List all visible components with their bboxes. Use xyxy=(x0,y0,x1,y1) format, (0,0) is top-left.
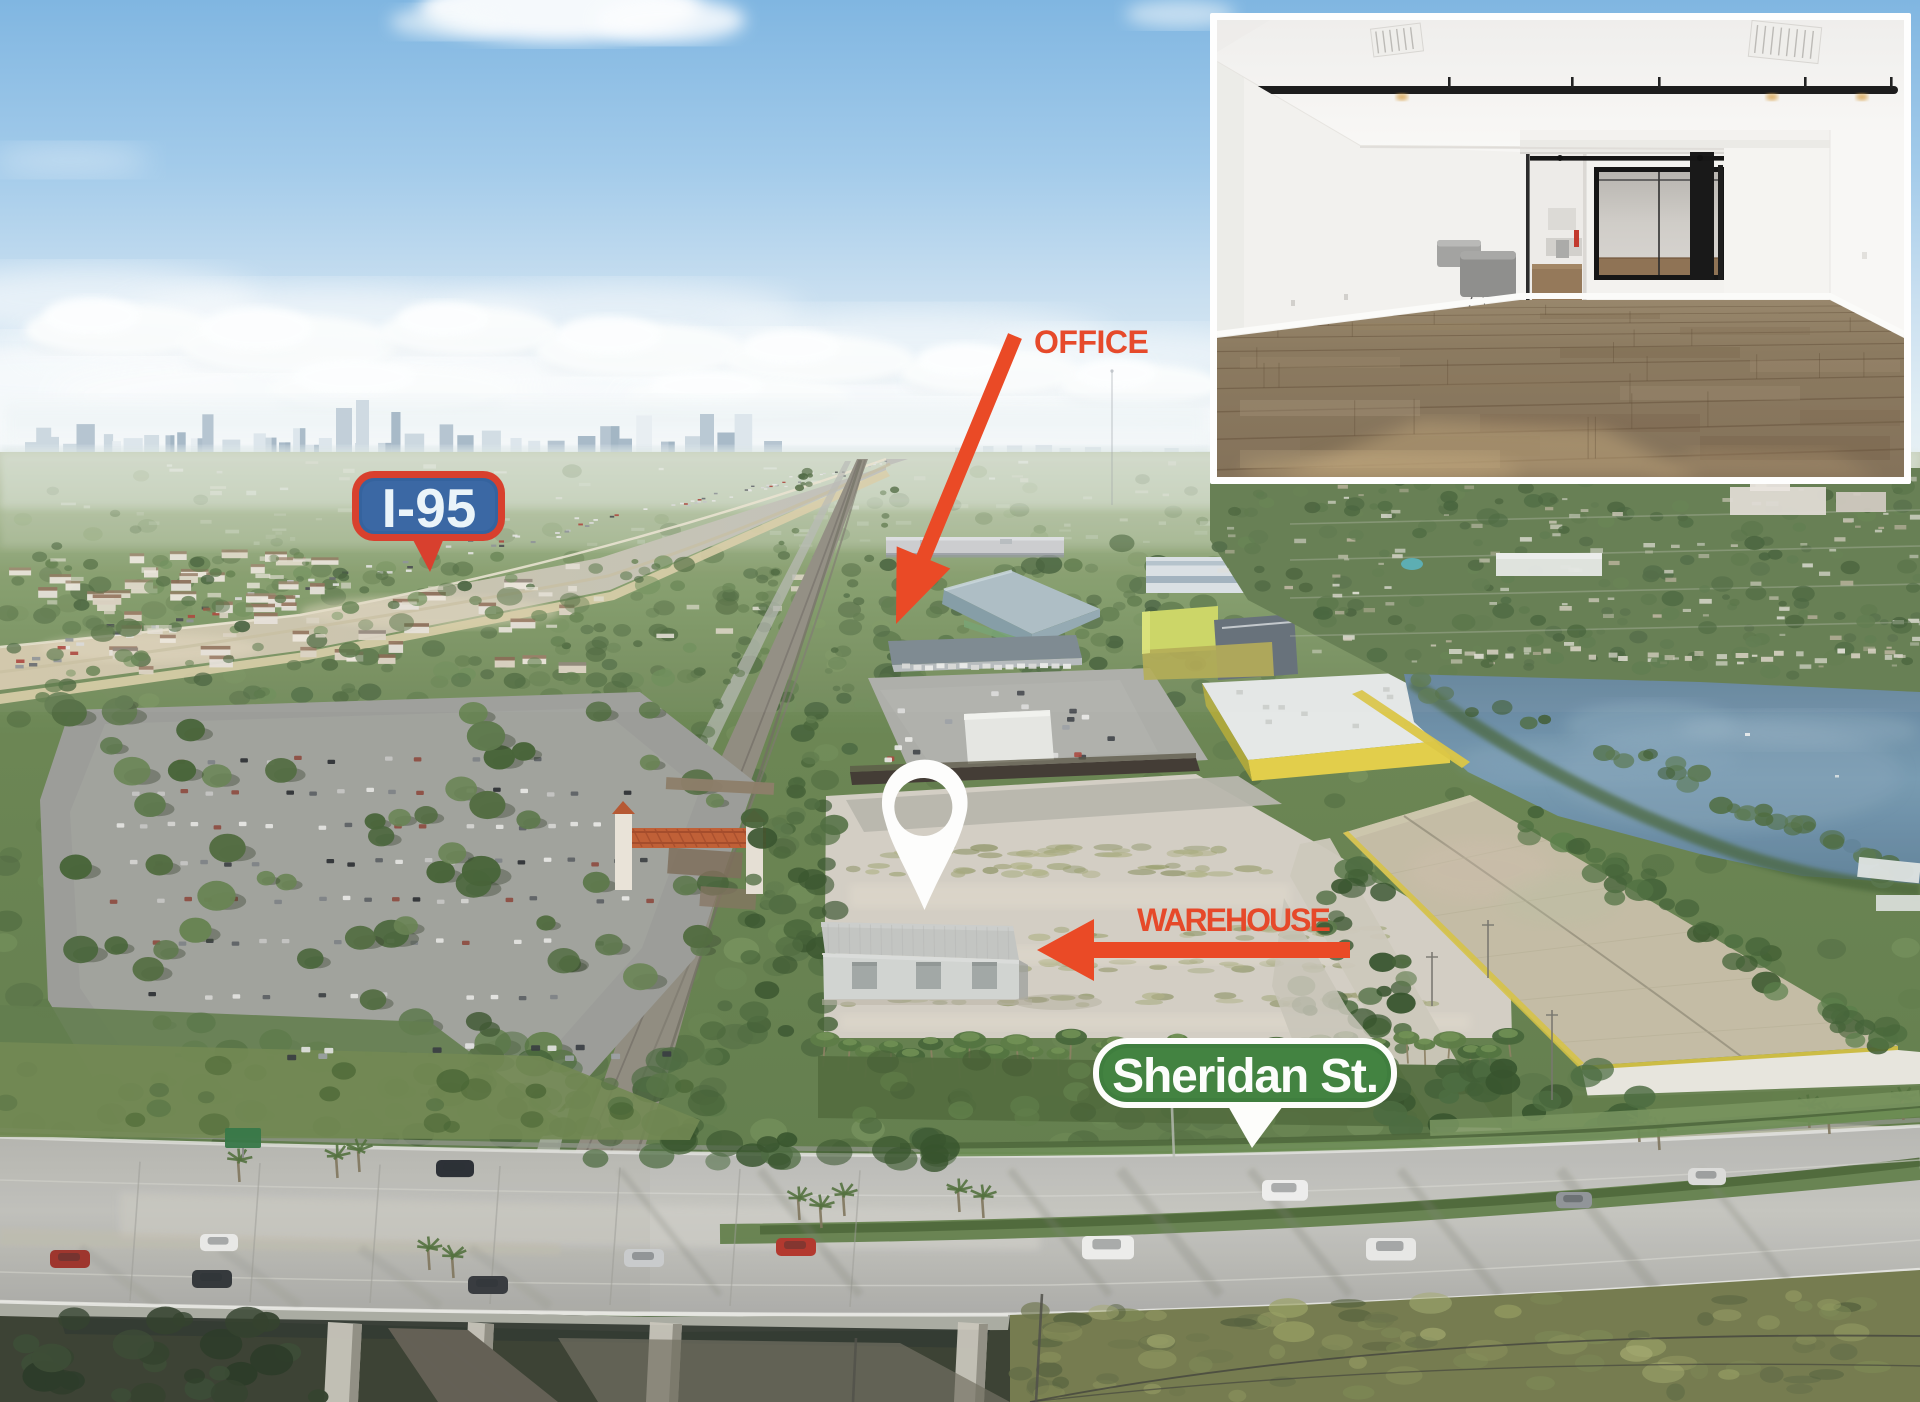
svg-text:I-95: I-95 xyxy=(382,477,477,539)
svg-text:OFFICE: OFFICE xyxy=(1034,324,1148,360)
svg-text:WAREHOUSE: WAREHOUSE xyxy=(1137,902,1330,938)
svg-text:Sheridan St.: Sheridan St. xyxy=(1112,1050,1378,1103)
